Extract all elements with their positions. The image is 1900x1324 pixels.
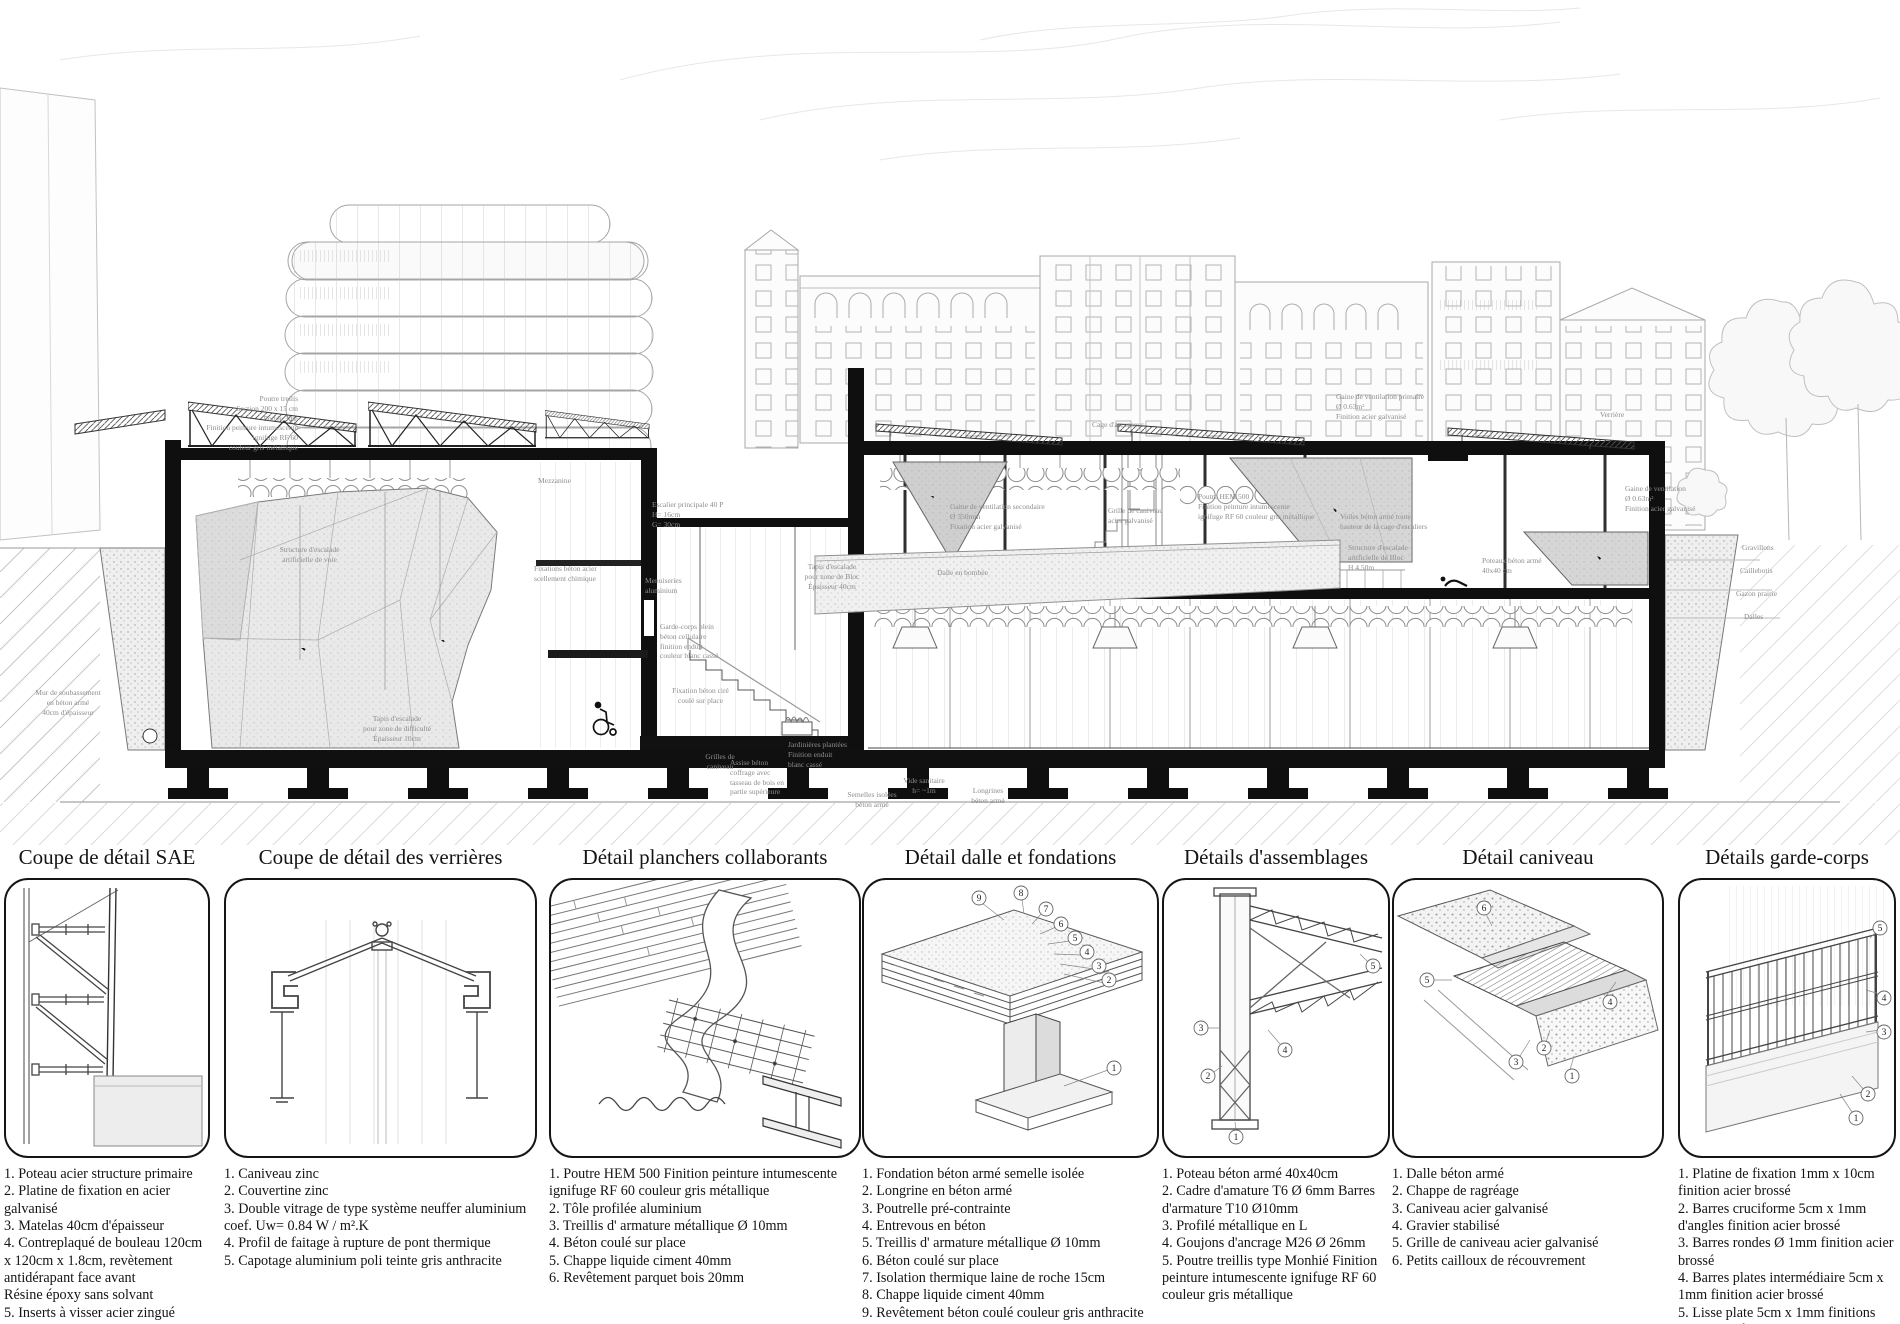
annotation: Assise béton coffrage avec tasseau de bo… xyxy=(730,758,820,797)
detail-panel-assemblages: Détails d'assemblages 1 xyxy=(1162,845,1390,1305)
sketch-contours xyxy=(60,8,1880,160)
legend-line: 2. Longrine en béton armé xyxy=(862,1183,1159,1200)
annotation: Garde-corps plein béton cellulaire finit… xyxy=(660,622,752,661)
legend-line: 1. Platine de fixation 1mm x 10cm finiti… xyxy=(1678,1166,1896,1201)
legend-line: 6. Béton coulé sur place xyxy=(862,1253,1159,1270)
annotation: Escalier principale 40 P H= 16cm G= 30cm xyxy=(652,500,764,529)
legend-line: 5. Poutre treillis type Monhié Finition … xyxy=(1162,1253,1390,1305)
legend-line: 1. Poteau béton armé 40x40cm xyxy=(1162,1166,1390,1183)
panel-legend: 1. Caniveau zinc 2. Couvertine zinc 3. D… xyxy=(224,1166,537,1270)
legend-line: 5. Grille de caniveau acier galvanisé xyxy=(1392,1235,1664,1252)
annotation: Gazon prairie xyxy=(1736,589,1821,599)
annotation: Mur de soubassement en béton armé 40cm d… xyxy=(12,688,124,717)
svg-text:1: 1 xyxy=(1570,1072,1575,1082)
legend-line: 1. Caniveau zinc xyxy=(224,1166,537,1183)
legend-line: 4. Contreplaqué de bouleau 120cm x 120cm… xyxy=(4,1235,210,1287)
panel-legend: 1. Poutre HEM 500 Finition peinture intu… xyxy=(549,1166,861,1287)
panel-title: Détails d'assemblages xyxy=(1162,845,1390,871)
svg-text:3: 3 xyxy=(1097,962,1102,972)
detail-drawing-garde-corps: 5 4 3 2 1 xyxy=(1678,878,1896,1158)
annotation: Longrines béton armé xyxy=(948,786,1028,806)
svg-text:2: 2 xyxy=(1206,1072,1211,1082)
legend-line: 2. Chappe de ragréage xyxy=(1392,1183,1664,1200)
svg-text:2: 2 xyxy=(1107,976,1112,986)
detail-drawing-planchers xyxy=(549,878,861,1158)
legend-line: 3. Treillis d' armature métallique Ø 10m… xyxy=(549,1218,861,1235)
annotation: Structure d'escalade artificielle de Blo… xyxy=(1348,543,1463,572)
svg-text:3: 3 xyxy=(1514,1058,1519,1068)
legend-line: 2. Platine de fixation en acier galvanis… xyxy=(4,1183,210,1218)
annotation: Fixation béton ciré coulé sur place xyxy=(648,686,753,706)
legend-line: 3. Barres rondes Ø 1mm finition acier br… xyxy=(1678,1235,1896,1270)
annotation: Tapis d'escalade pour zone de difficulté… xyxy=(332,714,462,743)
legend-line: 4. Goujons d'ancrage M26 Ø 26mm xyxy=(1162,1235,1390,1252)
svg-text:7: 7 xyxy=(1044,905,1049,915)
annotation: Gaine de ventilation secondaire Ø 350mm … xyxy=(950,502,1100,531)
svg-text:4: 4 xyxy=(1283,1046,1288,1056)
legend-line: Résine époxy sans solvant xyxy=(4,1287,210,1304)
annotation: Mezzanine xyxy=(538,476,618,486)
legend-line: 5. Inserts à visser acier zingué xyxy=(4,1305,210,1322)
detail-panel-sae: Coupe de détail SAE xyxy=(4,845,210,1324)
svg-text:3: 3 xyxy=(1199,1024,1204,1034)
annotation: Poutre treilis Section 200 x 15 cm Porté… xyxy=(118,394,298,453)
detail-drawing-dalle: 9 8 7 6 5 4 3 2 1 xyxy=(862,878,1159,1158)
annotation: Dalle en bombée xyxy=(915,568,1010,578)
svg-text:1: 1 xyxy=(1112,1064,1117,1074)
detail-drawing-assemblages: 1 2 3 4 5 xyxy=(1162,878,1390,1158)
annotation: Verrière xyxy=(1600,410,1670,420)
annotation: Gaine de ventilation Ø 0.63m² Finition a… xyxy=(1625,484,1733,513)
background-building-left xyxy=(0,88,100,540)
detail-panel-garde-corps: Détails garde-corps 5 xyxy=(1678,845,1896,1324)
svg-text:2: 2 xyxy=(1542,1044,1547,1054)
panel-title: Coupe de détail SAE xyxy=(4,845,210,871)
detail-drawing-caniveau: 6 5 4 3 2 1 xyxy=(1392,878,1664,1158)
detail-panel-verrieres: Coupe de détail des verrières xyxy=(224,845,537,1270)
legend-line: 3. Poutrelle pré-contrainte xyxy=(862,1201,1159,1218)
annotation: Dalles xyxy=(1744,612,1814,622)
legend-line: 5. Capotage aluminium poli teinte gris a… xyxy=(224,1253,537,1270)
legend-line: 1. Fondation béton armé semelle isolée xyxy=(862,1166,1159,1183)
legend-line: 2. Barres cruciforme 5cm x 1mm d'angles … xyxy=(1678,1201,1896,1236)
panel-legend: 1. Fondation béton armé semelle isolée 2… xyxy=(862,1166,1159,1322)
annotation: Caillebotis xyxy=(1740,566,1820,576)
panel-title: Détail caniveau xyxy=(1392,845,1664,871)
svg-text:5: 5 xyxy=(1371,962,1376,972)
legend-line: 4. Entrevous en béton xyxy=(862,1218,1159,1235)
panel-legend: 1. Poteau acier structure primaire 2. Pl… xyxy=(4,1166,210,1324)
legend-line: 4. Barres plates intermédiaire 5cm x 1mm… xyxy=(1678,1270,1896,1305)
annotation: Tapis d'escalade pour zone de Bloc Épais… xyxy=(782,562,882,591)
svg-text:9: 9 xyxy=(977,894,982,904)
legend-line: 2. Cadre d'amature T6 Ø 6mm Barres d'arm… xyxy=(1162,1183,1390,1218)
svg-text:1: 1 xyxy=(1854,1114,1859,1124)
svg-text:4: 4 xyxy=(1608,998,1613,1008)
legend-line: 5. Chappe liquide ciment 40mm xyxy=(549,1253,861,1270)
legend-line: 7. Isolation thermique laine de roche 15… xyxy=(862,1270,1159,1287)
legend-line: 3. Matelas 40cm d'épaisseur xyxy=(4,1218,210,1235)
legend-line: 5. Lisse plate 5cm x 1mm finitions acier… xyxy=(1678,1305,1896,1324)
annotation: Cage d'ascenseur xyxy=(1092,420,1187,430)
annotation: Gravillons xyxy=(1742,543,1822,553)
detail-panel-planchers: Détail planchers collaborants xyxy=(549,845,861,1287)
svg-text:1: 1 xyxy=(1234,1133,1239,1143)
detail-panel-dalle: Détail dalle et fondations 9 8 7 xyxy=(862,845,1159,1322)
annotation: Gaine de ventilation primaire Ø 0.63m² F… xyxy=(1336,392,1464,421)
detail-drawing-sae xyxy=(4,878,210,1158)
svg-text:2: 2 xyxy=(1866,1090,1871,1100)
legend-line: 8. Chappe liquide ciment 40mm xyxy=(862,1287,1159,1304)
legend-line: 9. Revêtement béton coulé couleur gris a… xyxy=(862,1305,1159,1322)
panel-title: Coupe de détail des verrières xyxy=(224,845,537,871)
legend-line: 1. Dalle béton armé xyxy=(1392,1166,1664,1183)
panel-legend: 1. Platine de fixation 1mm x 10cm finiti… xyxy=(1678,1166,1896,1324)
panel-legend: 1. Dalle béton armé 2. Chappe de ragréag… xyxy=(1392,1166,1664,1270)
annotation: Voiles béton armé toute hauteur de la ca… xyxy=(1340,512,1475,532)
legend-line: 4. Béton coulé sur place xyxy=(549,1235,861,1252)
legend-line: 6. Petits cailloux de récouvrement xyxy=(1392,1253,1664,1270)
legend-line: 3. Double vitrage de type système neuffe… xyxy=(224,1201,537,1236)
building-section: Poutre treilis Section 200 x 15 cm Porté… xyxy=(0,0,1900,845)
svg-text:5: 5 xyxy=(1073,934,1078,944)
legend-line: 6. Revêtement parquet bois 20mm xyxy=(549,1270,861,1287)
legend-line: 2. Tôle profilée aluminium xyxy=(549,1201,861,1218)
annotation: Menuiseries aluminium xyxy=(645,576,730,596)
panel-title: Détails garde-corps xyxy=(1678,845,1896,871)
svg-text:5: 5 xyxy=(1878,924,1883,934)
legend-line: 2. Couvertine zinc xyxy=(224,1183,537,1200)
legend-line: 5. Treillis d' armature métallique Ø 10m… xyxy=(862,1235,1159,1252)
svg-text:3: 3 xyxy=(1882,1028,1887,1038)
legend-line: 1. Poutre HEM 500 Finition peinture intu… xyxy=(549,1166,861,1201)
legend-line: 4. Gravier stabilisé xyxy=(1392,1218,1664,1235)
legend-line: 1. Poteau acier structure primaire xyxy=(4,1166,210,1183)
svg-text:4: 4 xyxy=(1882,994,1887,1004)
svg-text:6: 6 xyxy=(1059,920,1064,930)
annotation: Structure d'escalade artificielle de voi… xyxy=(252,545,367,565)
panel-title: Détail dalle et fondations xyxy=(862,845,1159,871)
detail-panel-caniveau: Détail caniveau 6 5 4 xyxy=(1392,845,1664,1270)
detail-drawing-verrieres xyxy=(224,878,537,1158)
legend-line: 3. Caniveau acier galvanisé xyxy=(1392,1201,1664,1218)
svg-text:4: 4 xyxy=(1085,948,1090,958)
svg-text:5: 5 xyxy=(1425,976,1430,986)
architecture-board: Poutre treilis Section 200 x 15 cm Porté… xyxy=(0,0,1900,1324)
panel-legend: 1. Poteau béton armé 40x40cm 2. Cadre d'… xyxy=(1162,1166,1390,1305)
svg-text:8: 8 xyxy=(1019,889,1024,899)
legend-line: 3. Profilé métallique en L xyxy=(1162,1218,1390,1235)
legend-line: 4. Profil de faitage à rupture de pont t… xyxy=(224,1235,537,1252)
annotation: Poteaux béton armé 40x40 cm xyxy=(1482,556,1582,576)
svg-text:6: 6 xyxy=(1482,904,1487,914)
annotation: Fixations béton acier scellement chimiqu… xyxy=(534,564,626,584)
panel-title: Détail planchers collaborants xyxy=(549,845,861,871)
